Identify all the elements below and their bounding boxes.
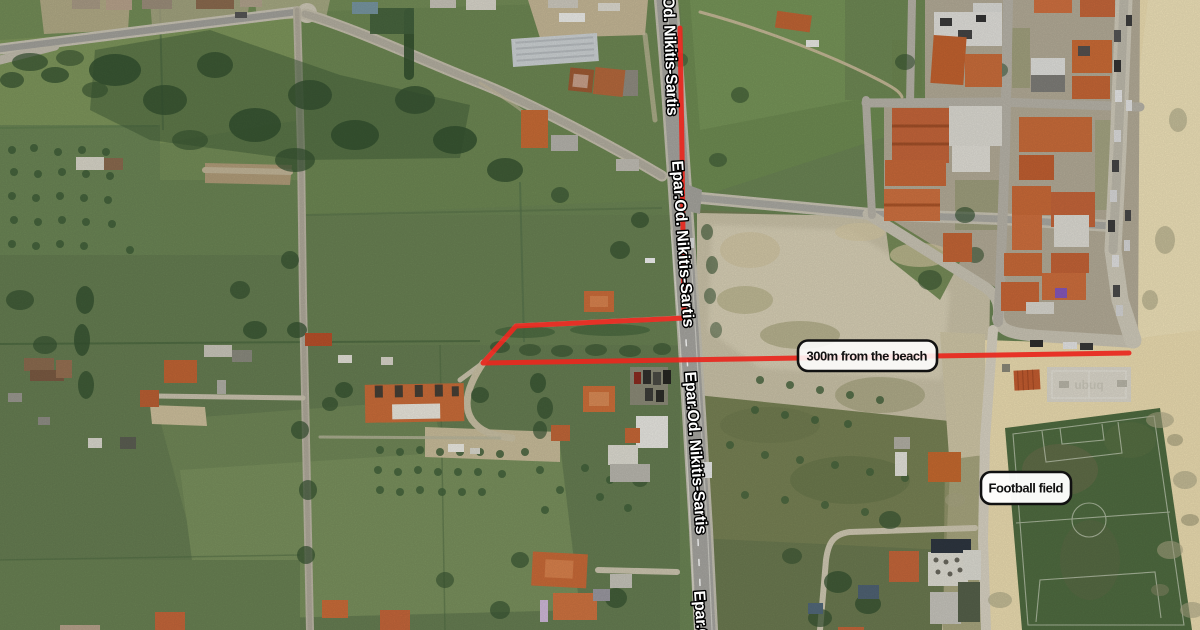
svg-text:Football field: Football field	[989, 481, 1064, 496]
svg-text:300m from the beach: 300m from the beach	[807, 349, 928, 364]
